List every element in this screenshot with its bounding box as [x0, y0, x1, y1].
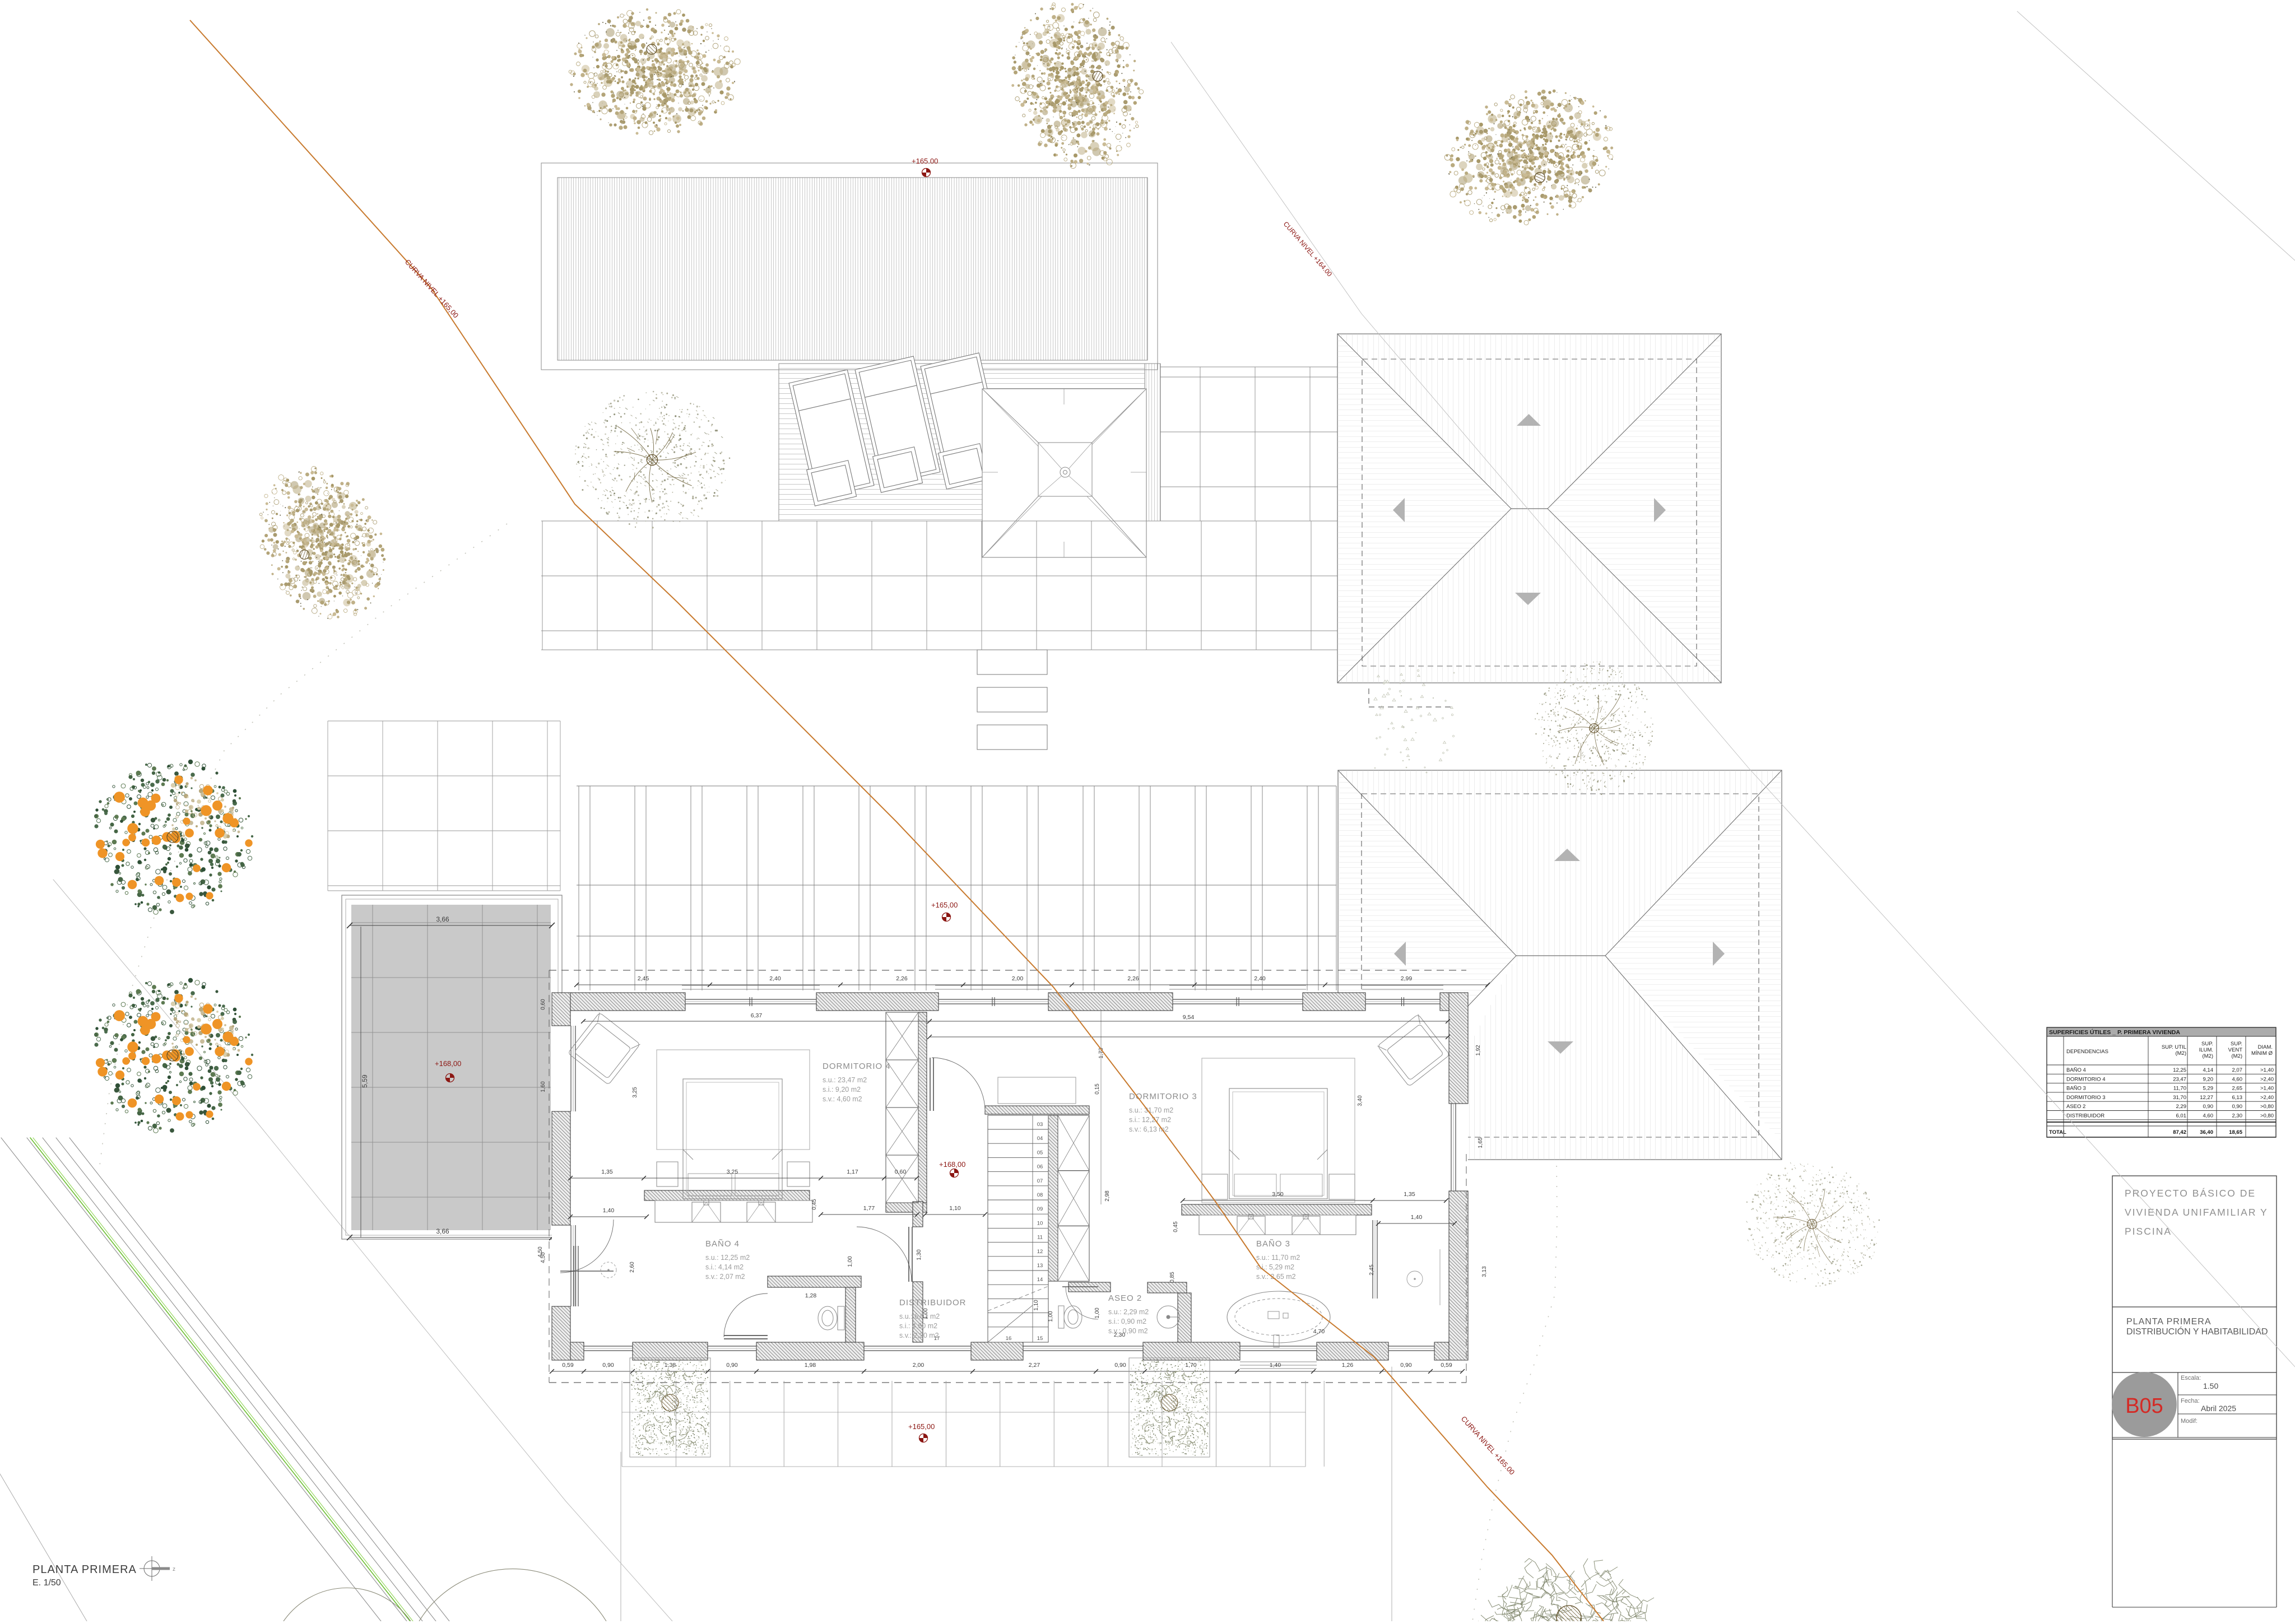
svg-text:1,60: 1,60 [540, 1081, 546, 1092]
svg-text:DISTRIBUIDOR: DISTRIBUIDOR [899, 1298, 967, 1307]
svg-text:3,25: 3,25 [632, 1087, 638, 1098]
svg-text:PROYECTO BÁSICO DE: PROYECTO BÁSICO DE [2125, 1188, 2256, 1199]
svg-text:(M2): (M2) [2231, 1053, 2242, 1059]
svg-text:1,17: 1,17 [847, 1169, 858, 1175]
svg-text:9,20: 9,20 [2203, 1076, 2214, 1082]
svg-text:1,40: 1,40 [603, 1207, 615, 1214]
svg-text:2,45: 2,45 [1369, 1264, 1375, 1276]
svg-text:14: 14 [1037, 1277, 1043, 1283]
svg-text:11: 11 [1037, 1235, 1043, 1241]
svg-text:SUP. UTIL: SUP. UTIL [2162, 1044, 2186, 1050]
svg-text:(M2): (M2) [2202, 1053, 2213, 1059]
svg-text:18,65: 18,65 [2229, 1129, 2242, 1136]
svg-text:4,60: 4,60 [2232, 1076, 2243, 1082]
svg-text:0,90: 0,90 [602, 1362, 614, 1369]
svg-text:+165,00: +165,00 [931, 901, 958, 909]
svg-text:DORMITORIO 4: DORMITORIO 4 [823, 1062, 891, 1071]
svg-text:+168,00: +168,00 [939, 1160, 965, 1169]
svg-text:1,38: 1,38 [665, 1362, 676, 1369]
svg-text:2,29: 2,29 [2176, 1104, 2187, 1110]
svg-text:2,07: 2,07 [2232, 1067, 2243, 1073]
svg-text:VIVIENDA UNIFAMILIAR Y: VIVIENDA UNIFAMILIAR Y [2125, 1207, 2268, 1218]
svg-text:1,35: 1,35 [601, 1169, 613, 1175]
svg-text:09: 09 [1037, 1206, 1043, 1212]
svg-text:0,90: 0,90 [1400, 1362, 1412, 1369]
svg-text:+165.00: +165.00 [912, 157, 938, 165]
svg-text:0,90: 0,90 [2232, 1104, 2243, 1110]
svg-text:BAÑO 4: BAÑO 4 [2066, 1067, 2086, 1073]
svg-text:2,60: 2,60 [629, 1262, 635, 1273]
svg-text:z: z [173, 1566, 175, 1572]
svg-text:07: 07 [1037, 1178, 1043, 1184]
svg-text:1,98: 1,98 [805, 1362, 816, 1369]
svg-text:0,85: 0,85 [1169, 1272, 1176, 1283]
svg-text:Fecha:: Fecha: [2181, 1398, 2200, 1404]
svg-text:31,70: 31,70 [2173, 1095, 2186, 1101]
svg-text:04: 04 [1037, 1136, 1043, 1142]
svg-text:0,90: 0,90 [726, 1362, 738, 1369]
svg-text:>0,80: >0,80 [2260, 1104, 2274, 1110]
svg-text:3,66: 3,66 [436, 915, 449, 923]
svg-text:BAÑO 3: BAÑO 3 [1256, 1239, 1290, 1249]
svg-text:ASEO 2: ASEO 2 [1108, 1293, 1142, 1303]
svg-text:12: 12 [1037, 1249, 1043, 1255]
svg-text:1,35: 1,35 [1404, 1191, 1415, 1198]
svg-text:2,26: 2,26 [1127, 975, 1139, 982]
svg-text:DIAM.: DIAM. [2258, 1044, 2273, 1050]
svg-text:1,26: 1,26 [1342, 1362, 1354, 1369]
svg-text:3,50: 3,50 [1272, 1191, 1284, 1198]
svg-text:DORMITORIO 3: DORMITORIO 3 [2066, 1095, 2106, 1101]
svg-text:s.u.: 23,47 m2: s.u.: 23,47 m2 [823, 1076, 867, 1084]
svg-text:s.i.: 4,60 m2: s.i.: 4,60 m2 [899, 1322, 937, 1330]
svg-text:+168,00: +168,00 [435, 1059, 461, 1068]
svg-text:BAÑO 4: BAÑO 4 [705, 1239, 740, 1249]
svg-text:2,27: 2,27 [1029, 1362, 1040, 1369]
svg-text:B05: B05 [2125, 1394, 2163, 1418]
svg-text:1,77: 1,77 [863, 1205, 875, 1212]
svg-text:PLANTA PRIMERA: PLANTA PRIMERA [2126, 1317, 2212, 1327]
svg-text:0,60: 0,60 [540, 999, 546, 1010]
svg-text:MÍNIM Ø: MÍNIM Ø [2251, 1050, 2273, 1057]
svg-text:2,45: 2,45 [638, 975, 649, 982]
svg-text:1.50: 1.50 [2203, 1381, 2218, 1390]
svg-text:4,50: 4,50 [537, 1246, 543, 1258]
svg-text:4,60: 4,60 [2203, 1113, 2214, 1119]
svg-text:VENT: VENT [2228, 1047, 2243, 1053]
svg-text:1,28: 1,28 [805, 1292, 817, 1299]
svg-text:2,40: 2,40 [769, 975, 781, 982]
svg-text:05: 05 [1037, 1150, 1043, 1156]
svg-text:DISTRIBUIDOR: DISTRIBUIDOR [2066, 1113, 2104, 1119]
svg-text:1,10: 1,10 [1033, 1300, 1039, 1311]
svg-text:E. 1/50: E. 1/50 [32, 1578, 61, 1588]
svg-text:s.u.: 2,29 m2: s.u.: 2,29 m2 [1108, 1308, 1149, 1316]
svg-text:s.v.: 2,30 m2: s.v.: 2,30 m2 [899, 1332, 939, 1339]
svg-text:1,00: 1,00 [1048, 1311, 1054, 1322]
svg-text:3,66: 3,66 [436, 1227, 449, 1235]
svg-text:1,10: 1,10 [949, 1205, 961, 1212]
svg-text:ASEO 2: ASEO 2 [2066, 1104, 2085, 1110]
svg-text:Modif:: Modif: [2181, 1418, 2198, 1425]
svg-text:5,29: 5,29 [2203, 1086, 2214, 1092]
svg-text:1,40: 1,40 [1270, 1362, 1281, 1369]
svg-text:1,92: 1,92 [1475, 1045, 1481, 1056]
svg-text:5,59: 5,59 [361, 1074, 369, 1088]
svg-text:0,59: 0,59 [562, 1362, 574, 1369]
svg-text:0,90: 0,90 [2203, 1104, 2214, 1110]
svg-text:Escala:: Escala: [2181, 1375, 2201, 1381]
svg-text:1,00: 1,00 [847, 1256, 853, 1267]
svg-text:1,40: 1,40 [1411, 1214, 1423, 1221]
svg-text:2,98: 2,98 [1104, 1190, 1111, 1202]
svg-text:1,70: 1,70 [1185, 1362, 1197, 1369]
svg-text:PISCINA: PISCINA [2125, 1226, 2172, 1237]
svg-text:2,26: 2,26 [896, 975, 908, 982]
svg-text:s.i.: 12,27 m2: s.i.: 12,27 m2 [1129, 1116, 1171, 1124]
svg-text:(M2): (M2) [2175, 1050, 2186, 1057]
svg-text:>1,40: >1,40 [2260, 1067, 2274, 1073]
svg-text:2,30: 2,30 [1114, 1332, 1126, 1338]
svg-text:11,70: 11,70 [2173, 1086, 2186, 1092]
svg-text:+165,00: +165,00 [908, 1422, 935, 1431]
svg-text:BAÑO 3: BAÑO 3 [2066, 1086, 2086, 1092]
svg-text:3,25: 3,25 [727, 1169, 738, 1175]
svg-text:1,30: 1,30 [916, 1249, 922, 1260]
svg-text:2,00: 2,00 [1012, 975, 1024, 982]
svg-text:2,00: 2,00 [913, 1362, 924, 1369]
svg-text:03: 03 [1037, 1122, 1043, 1128]
svg-text:>1,40: >1,40 [2260, 1086, 2274, 1092]
svg-text:s.i.: 0,90 m2: s.i.: 0,90 m2 [1108, 1318, 1146, 1325]
svg-text:s.v.: 4,60 m2: s.v.: 4,60 m2 [823, 1095, 862, 1103]
svg-text:2,30: 2,30 [2232, 1113, 2243, 1119]
svg-text:15: 15 [1037, 1336, 1043, 1342]
svg-text:0,90: 0,90 [1114, 1362, 1126, 1369]
svg-text:DORMITORIO 4: DORMITORIO 4 [2066, 1076, 2106, 1082]
svg-text:>0,80: >0,80 [2260, 1113, 2274, 1119]
svg-text:13: 13 [1037, 1263, 1043, 1269]
svg-text:s.u.: 12,25 m2: s.u.: 12,25 m2 [705, 1254, 750, 1262]
svg-text:6,37: 6,37 [751, 1012, 763, 1019]
svg-text:3,13: 3,13 [1481, 1266, 1488, 1277]
svg-text:06: 06 [1037, 1164, 1043, 1170]
svg-text:9,54: 9,54 [1183, 1014, 1195, 1021]
svg-text:s.i.: 9,20 m2: s.i.: 9,20 m2 [823, 1086, 861, 1093]
svg-text:>2,40: >2,40 [2260, 1076, 2274, 1082]
svg-text:s.i.: 5,29 m2: s.i.: 5,29 m2 [1256, 1263, 1294, 1271]
svg-text:Abril 2025: Abril 2025 [2201, 1404, 2236, 1413]
svg-text:2,40: 2,40 [1254, 975, 1266, 982]
svg-text:s.u.: 31,70 m2: s.u.: 31,70 m2 [1129, 1106, 1173, 1114]
svg-text:12,25: 12,25 [2173, 1067, 2186, 1073]
svg-text:2,65: 2,65 [2232, 1086, 2243, 1092]
svg-text:0,45: 0,45 [1173, 1221, 1179, 1232]
svg-text:3,40: 3,40 [1357, 1095, 1363, 1106]
svg-text:1,65: 1,65 [1478, 1137, 1484, 1148]
svg-text:23,47: 23,47 [2173, 1076, 2186, 1082]
svg-text:36,40: 36,40 [2200, 1129, 2213, 1136]
svg-text:1,00: 1,00 [1094, 1307, 1100, 1319]
svg-text:10: 10 [1037, 1220, 1043, 1226]
svg-text:SUP.: SUP. [2231, 1041, 2242, 1047]
svg-text:s.i.: 4,14 m2: s.i.: 4,14 m2 [705, 1263, 744, 1271]
svg-text:ILUM.: ILUM. [2199, 1047, 2213, 1053]
svg-text:6,13: 6,13 [2232, 1095, 2243, 1101]
svg-text:4,70: 4,70 [1313, 1328, 1325, 1335]
svg-text:0,15: 0,15 [1094, 1083, 1100, 1095]
svg-text:16: 16 [1006, 1336, 1012, 1342]
svg-text:4,14: 4,14 [2203, 1067, 2214, 1073]
svg-text:DISTRIBUCIÓN Y HABITABILIDAD: DISTRIBUCIÓN Y HABITABILIDAD [2126, 1326, 2268, 1337]
svg-text:0,60: 0,60 [895, 1169, 907, 1175]
svg-text:6,01: 6,01 [2176, 1113, 2187, 1119]
svg-text:s.u.: 11,70 m2: s.u.: 11,70 m2 [1256, 1254, 1300, 1262]
svg-text:12,27: 12,27 [2200, 1095, 2213, 1101]
svg-text:2,99: 2,99 [1401, 975, 1413, 982]
svg-text:SUPERFICIES ÚTILES _ P. PRIMER: SUPERFICIES ÚTILES _ P. PRIMERA VIVIENDA [2049, 1029, 2180, 1036]
svg-text:s.u.: 6,01 m2: s.u.: 6,01 m2 [899, 1313, 940, 1320]
svg-text:1,00: 1,00 [923, 1308, 929, 1319]
svg-text:87,42: 87,42 [2173, 1129, 2186, 1136]
svg-text:0,45: 0,45 [811, 1199, 817, 1210]
svg-text:PLANTA PRIMERA: PLANTA PRIMERA [32, 1563, 137, 1576]
svg-text:>2,40: >2,40 [2260, 1095, 2274, 1101]
svg-text:SUP.: SUP. [2201, 1041, 2213, 1047]
svg-text:DEPENDENCIAS: DEPENDENCIAS [2066, 1049, 2108, 1055]
svg-text:0,59: 0,59 [1441, 1362, 1452, 1369]
svg-text:s.v.: 2,07 m2: s.v.: 2,07 m2 [705, 1273, 745, 1281]
svg-text:08: 08 [1037, 1192, 1043, 1198]
